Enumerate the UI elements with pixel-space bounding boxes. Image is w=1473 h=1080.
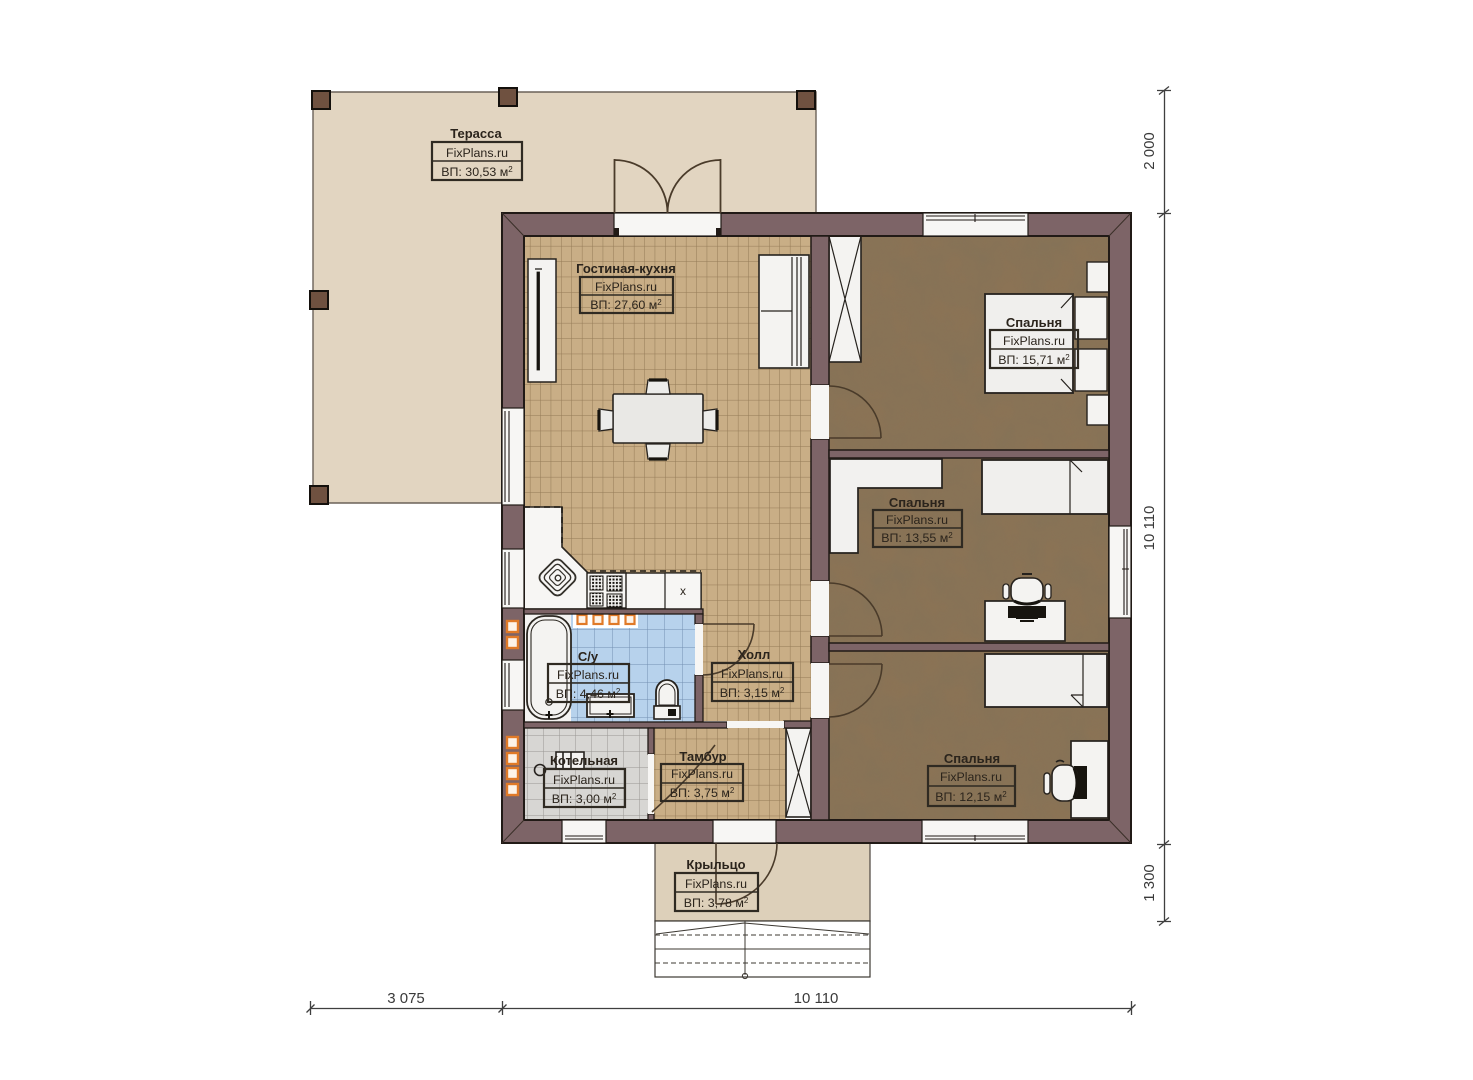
svg-text:FixPlans.ru: FixPlans.ru — [553, 773, 615, 787]
svg-text:ВП: 30,53 м2: ВП: 30,53 м2 — [441, 165, 513, 179]
svg-text:FixPlans.ru: FixPlans.ru — [557, 668, 619, 682]
svg-text:ВП: 4,46 м2: ВП: 4,46 м2 — [556, 687, 621, 701]
svg-text:С/у: С/у — [578, 649, 599, 664]
svg-text:Холл: Холл — [738, 647, 771, 662]
svg-text:FixPlans.ru: FixPlans.ru — [685, 877, 747, 891]
svg-text:FixPlans.ru: FixPlans.ru — [595, 280, 657, 294]
svg-text:10 110: 10 110 — [794, 990, 839, 1007]
svg-text:ВП: 13,55 м2: ВП: 13,55 м2 — [881, 531, 953, 545]
svg-text:2 000: 2 000 — [1141, 132, 1158, 170]
svg-text:Гостиная-кухня: Гостиная-кухня — [576, 261, 676, 276]
svg-text:3 075: 3 075 — [387, 990, 425, 1007]
svg-text:ВП: 15,71 м2: ВП: 15,71 м2 — [998, 353, 1070, 367]
svg-text:Спальня: Спальня — [889, 495, 945, 510]
svg-text:FixPlans.ru: FixPlans.ru — [1003, 334, 1065, 348]
svg-text:Крыльцо: Крыльцо — [686, 857, 745, 872]
svg-text:ВП: 3,78 м2: ВП: 3,78 м2 — [684, 896, 749, 910]
svg-text:FixPlans.ru: FixPlans.ru — [886, 513, 948, 527]
svg-text:FixPlans.ru: FixPlans.ru — [940, 770, 1002, 784]
svg-text:FixPlans.ru: FixPlans.ru — [721, 667, 783, 681]
svg-text:1 300: 1 300 — [1141, 864, 1158, 902]
svg-text:ВП: 27,60 м2: ВП: 27,60 м2 — [590, 298, 662, 312]
svg-text:10 110: 10 110 — [1141, 506, 1158, 551]
svg-text:FixPlans.ru: FixPlans.ru — [446, 146, 508, 160]
svg-text:ВП: 3,00 м2: ВП: 3,00 м2 — [552, 792, 617, 806]
svg-text:ВП: 3,15 м2: ВП: 3,15 м2 — [720, 686, 785, 700]
svg-text:Тамбур: Тамбур — [679, 749, 726, 764]
svg-text:Спальня: Спальня — [1006, 315, 1062, 330]
svg-text:ВП: 12,15 м2: ВП: 12,15 м2 — [935, 790, 1007, 804]
svg-text:x: x — [680, 584, 686, 598]
svg-text:ВП: 3,75 м2: ВП: 3,75 м2 — [670, 786, 735, 800]
svg-text:Котельная: Котельная — [550, 753, 618, 768]
svg-text:Терасса: Терасса — [450, 126, 502, 141]
svg-text:FixPlans.ru: FixPlans.ru — [671, 767, 733, 781]
svg-text:Спальня: Спальня — [944, 751, 1000, 766]
